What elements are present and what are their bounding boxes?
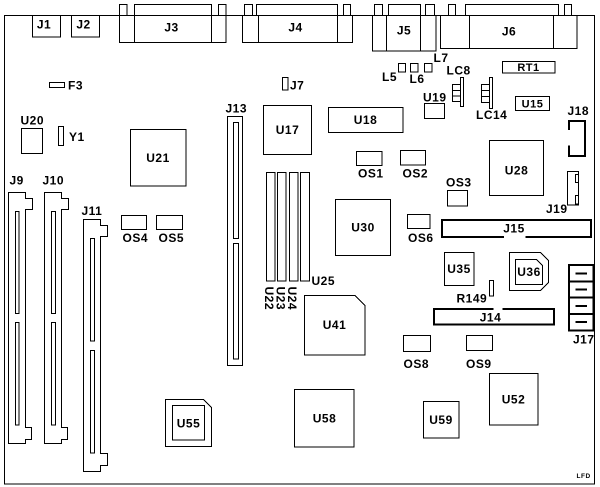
svg-text:U35: U35 <box>447 262 471 276</box>
svg-text:J10: J10 <box>43 174 65 188</box>
svg-text:U20: U20 <box>21 114 45 128</box>
svg-text:U52: U52 <box>502 393 526 407</box>
svg-text:U25: U25 <box>312 274 336 288</box>
svg-text:OS1: OS1 <box>358 167 384 181</box>
svg-text:U55: U55 <box>177 417 201 431</box>
svg-text:J11: J11 <box>82 204 103 218</box>
svg-text:J15: J15 <box>503 222 525 236</box>
svg-text:OS6: OS6 <box>408 231 434 245</box>
svg-text:OS2: OS2 <box>403 167 429 181</box>
svg-text:LC8: LC8 <box>447 64 471 78</box>
svg-text:J7: J7 <box>290 79 304 93</box>
svg-text:R149: R149 <box>457 292 488 306</box>
svg-text:J3: J3 <box>164 21 178 35</box>
svg-text:J6: J6 <box>502 25 516 39</box>
svg-text:Y1: Y1 <box>69 130 85 144</box>
svg-text:J17: J17 <box>573 333 595 347</box>
svg-text:U30: U30 <box>351 221 375 235</box>
svg-text:J13: J13 <box>226 102 248 116</box>
svg-text:OS9: OS9 <box>466 357 492 371</box>
svg-text:L6: L6 <box>410 72 425 86</box>
svg-text:L5: L5 <box>382 70 397 84</box>
svg-text:LFD: LFD <box>577 473 591 480</box>
svg-text:RT1: RT1 <box>517 62 539 74</box>
svg-text:OS5: OS5 <box>159 231 185 245</box>
svg-text:U41: U41 <box>323 318 347 332</box>
svg-text:J5: J5 <box>397 24 411 38</box>
svg-text:OS4: OS4 <box>123 231 149 245</box>
svg-text:J4: J4 <box>288 21 302 35</box>
svg-text:LC14: LC14 <box>476 108 507 122</box>
svg-text:U21: U21 <box>146 151 170 165</box>
svg-text:OS8: OS8 <box>404 357 430 371</box>
svg-text:U17: U17 <box>276 123 300 137</box>
svg-text:U36: U36 <box>517 265 541 279</box>
svg-text:U58: U58 <box>313 412 337 426</box>
svg-text:U18: U18 <box>354 113 378 127</box>
svg-text:J14: J14 <box>480 311 502 325</box>
svg-text:J18: J18 <box>568 104 590 118</box>
svg-text:U24: U24 <box>285 287 299 311</box>
svg-text:J19: J19 <box>546 202 568 216</box>
svg-text:OS3: OS3 <box>446 176 472 190</box>
svg-text:J1: J1 <box>37 18 51 32</box>
svg-text:J9: J9 <box>10 174 24 188</box>
svg-text:F3: F3 <box>68 79 83 93</box>
svg-text:U15: U15 <box>522 99 544 111</box>
svg-text:U19: U19 <box>423 91 447 105</box>
svg-text:U28: U28 <box>505 164 529 178</box>
svg-text:J2: J2 <box>76 18 90 32</box>
svg-text:U59: U59 <box>429 413 453 427</box>
